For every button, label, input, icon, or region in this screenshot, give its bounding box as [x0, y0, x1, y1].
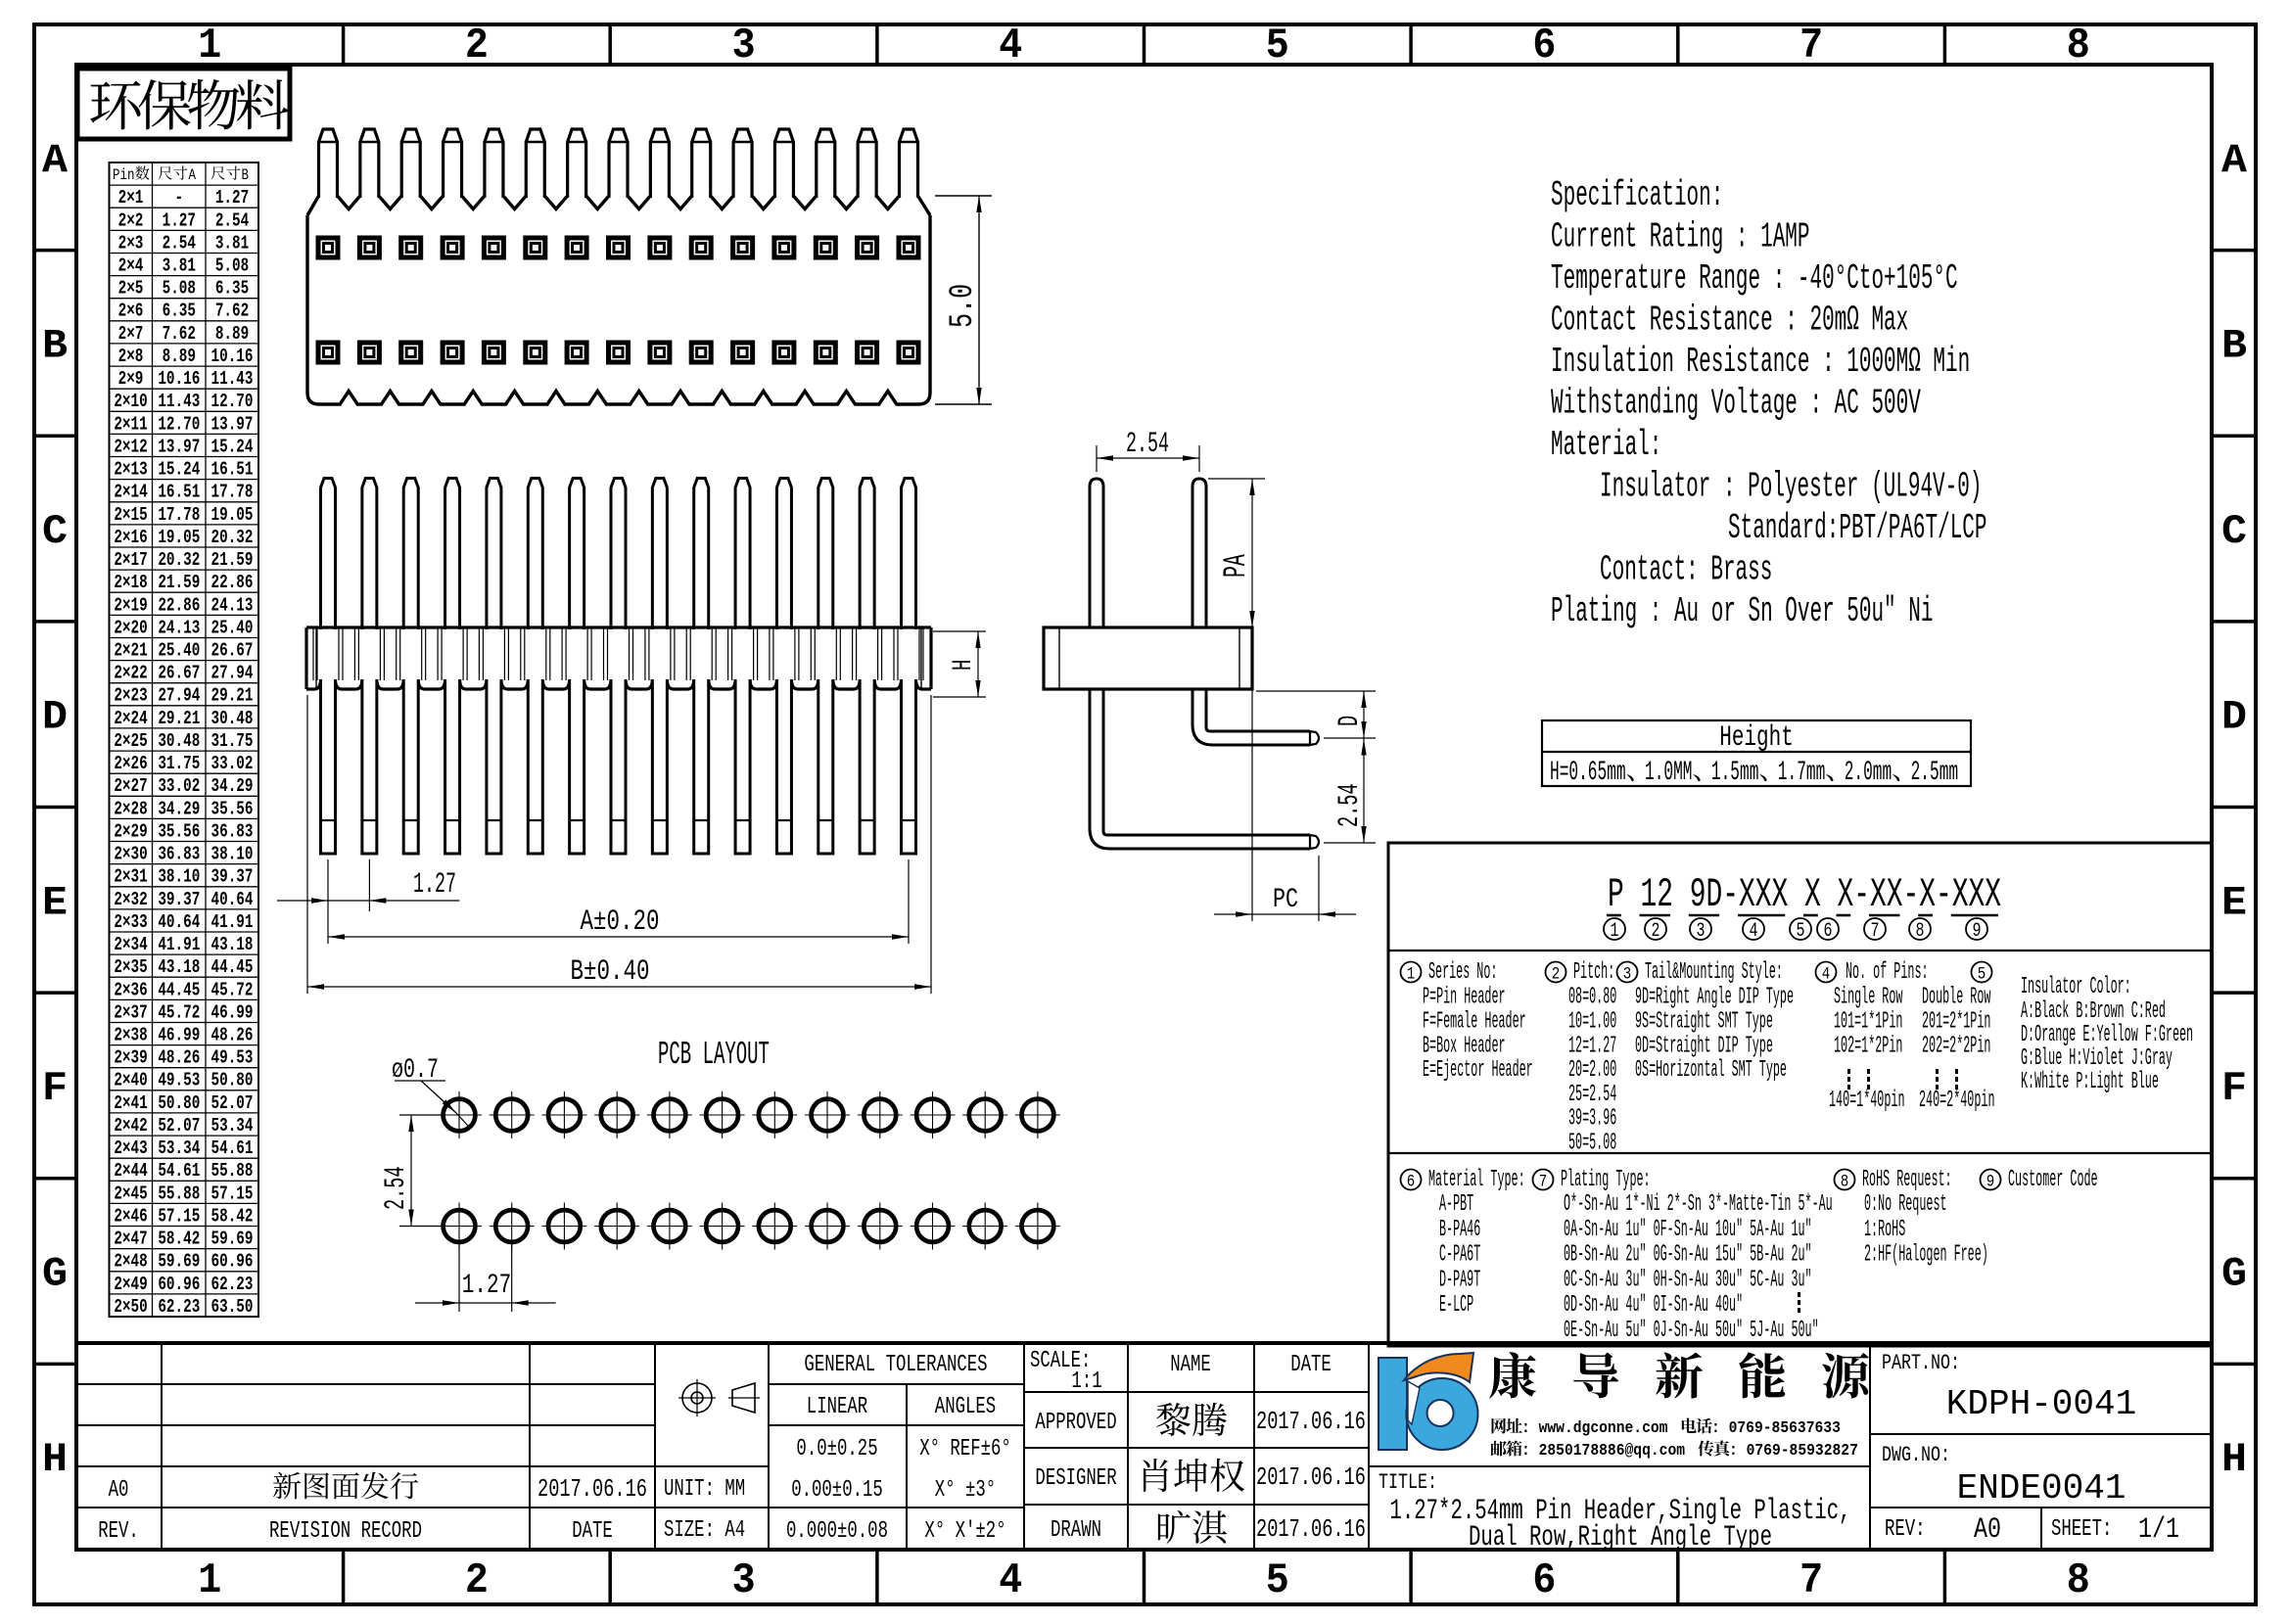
svg-text:A0: A0: [109, 1478, 129, 1504]
svg-text:X° X'±2°: X° X'±2°: [924, 1519, 1005, 1545]
svg-text:2×17: 2×17: [114, 550, 147, 571]
svg-text:1.27: 1.27: [413, 868, 456, 902]
svg-text:54.61: 54.61: [158, 1162, 200, 1183]
svg-text:7: 7: [1799, 1555, 1823, 1604]
svg-text:33.02: 33.02: [211, 754, 254, 774]
svg-text:2×41: 2×41: [114, 1093, 147, 1114]
svg-text:0D-Sn-Au 4u" 0I-Sn-Au 40u": 0D-Sn-Au 4u" 0I-Sn-Au 40u": [1564, 1291, 1743, 1319]
svg-text:Insulator : Polyester (UL94V-0: Insulator : Polyester (UL94V-0): [1600, 466, 1982, 507]
svg-text:F: F: [42, 1064, 68, 1111]
svg-text:4: 4: [1749, 920, 1757, 943]
svg-text:3: 3: [732, 1555, 756, 1604]
svg-text:2×6: 2×6: [118, 302, 144, 322]
svg-text:LINEAR: LINEAR: [807, 1395, 868, 1420]
svg-text:0D=Straight DIP Type: 0D=Straight DIP Type: [1635, 1032, 1773, 1059]
svg-text:2×1: 2×1: [118, 188, 144, 209]
svg-text:11.43: 11.43: [211, 369, 254, 390]
svg-text:38.10: 38.10: [211, 845, 254, 865]
svg-text:30.48: 30.48: [158, 731, 200, 752]
svg-text:Material:: Material:: [1551, 424, 1661, 465]
svg-text:0S=Horizontal SMT Type: 0S=Horizontal SMT Type: [1635, 1056, 1787, 1084]
svg-text:25.40: 25.40: [158, 641, 200, 662]
svg-text:Single Row: Single Row: [1834, 983, 1903, 1010]
svg-text:24.13: 24.13: [158, 619, 200, 639]
svg-text:2: 2: [1552, 964, 1561, 984]
svg-text:2×10: 2×10: [114, 393, 147, 413]
svg-text:34.29: 34.29: [158, 800, 200, 820]
svg-text:59.69: 59.69: [211, 1230, 254, 1250]
svg-text:Insulation Resistance : 1000MΩ: Insulation Resistance : 1000MΩ Min: [1551, 341, 1970, 382]
svg-text:2017.06.16: 2017.06.16: [1256, 1462, 1366, 1492]
svg-text:101=1*1Pin: 101=1*1Pin: [1834, 1007, 1902, 1035]
svg-text:2×42: 2×42: [114, 1116, 147, 1137]
svg-text:53.34: 53.34: [211, 1116, 254, 1137]
svg-text:Double Row: Double Row: [1922, 983, 1991, 1010]
svg-text:24.13: 24.13: [211, 596, 254, 617]
svg-text:Plating Type:: Plating Type:: [1561, 1166, 1651, 1193]
svg-text:: www.dgconne.com: : www.dgconne.com: [1521, 1418, 1667, 1437]
svg-text:REV:: REV:: [1885, 1517, 1926, 1543]
svg-text:REV.: REV.: [98, 1519, 139, 1545]
svg-text:54.61: 54.61: [211, 1138, 254, 1159]
svg-text:57.15: 57.15: [158, 1207, 200, 1228]
svg-text:8: 8: [2067, 21, 2090, 70]
svg-text:140=1*40pin: 140=1*40pin: [1829, 1087, 1904, 1114]
svg-text:2.54: 2.54: [215, 211, 249, 232]
svg-text:40.64: 40.64: [158, 912, 200, 933]
svg-text:2×49: 2×49: [114, 1275, 147, 1295]
svg-text:38.10: 38.10: [158, 867, 200, 888]
svg-text:2×34: 2×34: [114, 935, 147, 955]
svg-text:22.86: 22.86: [211, 573, 254, 593]
svg-text:6: 6: [1823, 920, 1832, 943]
svg-text:2×23: 2×23: [114, 686, 147, 707]
svg-text:58.42: 58.42: [158, 1230, 200, 1250]
svg-text:Plating : Au or Sn Over 50u" N: Plating : Au or Sn Over 50u" Ni: [1551, 590, 1933, 631]
svg-text:22.86: 22.86: [158, 596, 200, 617]
svg-text:10=1.00: 10=1.00: [1568, 1007, 1616, 1035]
svg-text:B: B: [242, 167, 250, 185]
svg-text:2.5mm: 2.5mm: [1911, 757, 1959, 788]
svg-text:Temperature Range : -40°Cto+10: Temperature Range : -40°Cto+105°C: [1551, 257, 1958, 299]
svg-text:GENERAL TOLERANCES: GENERAL TOLERANCES: [804, 1353, 987, 1378]
svg-text:Specification:: Specification:: [1551, 174, 1723, 215]
svg-text:43.18: 43.18: [211, 935, 254, 955]
svg-text:2.0mm: 2.0mm: [1845, 757, 1893, 788]
svg-text:K:White P:Light Blue: K:White P:Light Blue: [2021, 1068, 2159, 1095]
svg-text:19.05: 19.05: [211, 505, 254, 526]
svg-text:39=3.96: 39=3.96: [1568, 1104, 1616, 1132]
svg-text:9: 9: [1972, 920, 1981, 943]
svg-text:2017.06.16: 2017.06.16: [1256, 1407, 1366, 1436]
svg-text:No. of Pins:: No. of Pins:: [1846, 958, 1929, 986]
svg-text:B: B: [2221, 322, 2247, 369]
svg-text:A: A: [189, 167, 197, 185]
svg-text:49.53: 49.53: [211, 1048, 254, 1069]
svg-text:2: 2: [465, 1555, 489, 1604]
svg-text:26.67: 26.67: [158, 664, 200, 684]
svg-text:Customer Code: Customer Code: [2008, 1166, 2098, 1193]
svg-text:2×46: 2×46: [114, 1207, 147, 1228]
svg-text:2×39: 2×39: [114, 1048, 147, 1069]
svg-text:26.67: 26.67: [211, 641, 254, 662]
svg-text:9D=Right Angle DIP Type: 9D=Right Angle DIP Type: [1635, 983, 1794, 1010]
svg-text:A: A: [42, 136, 68, 183]
svg-text:0A-Sn-Au 1u" 0F-Sn-Au 10u" 5A: 0A-Sn-Au 1u" 0F-Sn-Au 10u" 5A-Au 1u": [1564, 1215, 1812, 1242]
svg-text:30.48: 30.48: [211, 709, 254, 729]
svg-text:1.27: 1.27: [215, 188, 249, 209]
svg-text:: 2850178886@qq.com: : 2850178886@qq.com: [1521, 1441, 1685, 1460]
svg-text:A-PBT: A-PBT: [1439, 1190, 1473, 1218]
svg-text:Height: Height: [1719, 720, 1794, 755]
svg-text:5.0: 5.0: [944, 284, 982, 328]
svg-text:A: A: [2221, 136, 2247, 183]
svg-text:5: 5: [1266, 21, 1289, 70]
svg-text:5: 5: [1796, 920, 1804, 943]
svg-text:36.83: 36.83: [211, 822, 254, 843]
svg-text:DESIGNER: DESIGNER: [1035, 1466, 1117, 1492]
svg-text:21.59: 21.59: [211, 550, 254, 571]
svg-text:4: 4: [1822, 964, 1831, 984]
svg-text:2×35: 2×35: [114, 957, 147, 978]
svg-text:31.75: 31.75: [158, 754, 200, 774]
svg-text:9S=Straight SMT Type: 9S=Straight SMT Type: [1635, 1007, 1773, 1035]
svg-text:A±0.20: A±0.20: [581, 905, 660, 938]
svg-text:D: D: [1333, 716, 1367, 726]
svg-text:240=2*40pin: 240=2*40pin: [1919, 1087, 1994, 1114]
svg-text:REVISION RECORD: REVISION RECORD: [269, 1519, 422, 1545]
svg-text:45.72: 45.72: [211, 981, 254, 1001]
svg-text:2×40: 2×40: [114, 1071, 147, 1091]
svg-text:58.42: 58.42: [211, 1207, 254, 1228]
svg-text:16.51: 16.51: [211, 460, 254, 481]
svg-text:2×24: 2×24: [114, 709, 147, 729]
svg-text:2017.06.16: 2017.06.16: [1256, 1514, 1366, 1544]
svg-text:39.37: 39.37: [158, 890, 200, 910]
svg-text:1: 1: [198, 21, 221, 70]
svg-text:7: 7: [1539, 1172, 1548, 1191]
svg-text:H: H: [949, 660, 980, 671]
svg-text:1:1: 1:1: [1071, 1369, 1101, 1395]
svg-text:2×28: 2×28: [114, 800, 147, 820]
svg-text:Material Type:: Material Type:: [1428, 1166, 1525, 1193]
svg-text:3: 3: [1696, 920, 1705, 943]
svg-text:PCB LAYOUT: PCB LAYOUT: [658, 1038, 770, 1074]
svg-text:2×16: 2×16: [114, 528, 147, 548]
svg-text:2.54: 2.54: [1126, 428, 1169, 461]
svg-text:2×50: 2×50: [114, 1297, 147, 1318]
svg-text:48.26: 48.26: [158, 1048, 200, 1069]
svg-text:Tail&Mounting Style:: Tail&Mounting Style:: [1645, 958, 1783, 986]
svg-text:8: 8: [1915, 920, 1924, 943]
svg-text:12.70: 12.70: [158, 415, 200, 436]
svg-text:E: E: [42, 879, 68, 926]
svg-text:Withstanding Voltage : AC 500V: Withstanding Voltage : AC 500V: [1551, 383, 1921, 424]
svg-text:G: G: [42, 1250, 68, 1297]
svg-text:6: 6: [1532, 1555, 1556, 1604]
svg-text:2017.06.16: 2017.06.16: [537, 1474, 647, 1504]
svg-text:1:RoHS: 1:RoHS: [1864, 1215, 1905, 1242]
svg-text:8: 8: [1841, 1172, 1849, 1191]
svg-text:7: 7: [1799, 21, 1823, 70]
svg-text:3: 3: [732, 21, 756, 70]
svg-text:59.69: 59.69: [158, 1252, 200, 1273]
svg-text:27.94: 27.94: [211, 664, 254, 684]
svg-text:62.23: 62.23: [158, 1297, 200, 1318]
svg-text:2×38: 2×38: [114, 1026, 147, 1046]
svg-text:X° REF±6°: X° REF±6°: [919, 1437, 1011, 1462]
svg-text:ANGLES: ANGLES: [935, 1395, 996, 1420]
svg-text:3.81: 3.81: [163, 256, 196, 277]
svg-text:H=0.65mm: H=0.65mm: [1550, 757, 1626, 788]
svg-text:1.7mm: 1.7mm: [1778, 757, 1826, 788]
svg-text:35.56: 35.56: [211, 800, 254, 820]
svg-text:8.89: 8.89: [163, 347, 196, 367]
svg-text:41.91: 41.91: [211, 912, 254, 933]
svg-text:2: 2: [1651, 920, 1659, 943]
svg-text:F: F: [2221, 1064, 2247, 1111]
svg-text:2×32: 2×32: [114, 890, 147, 910]
svg-text:36.83: 36.83: [158, 845, 200, 865]
svg-text:8.89: 8.89: [215, 324, 249, 345]
svg-text:7.62: 7.62: [215, 302, 249, 322]
svg-text:5.08: 5.08: [215, 256, 249, 277]
svg-text:E: E: [2221, 879, 2247, 926]
svg-text:50=5.08: 50=5.08: [1568, 1129, 1616, 1156]
svg-text:12.70: 12.70: [211, 393, 254, 413]
svg-text:Standard:PBT/PA6T/LCP: Standard:PBT/PA6T/LCP: [1728, 507, 1986, 548]
svg-text:APPROVED: APPROVED: [1035, 1411, 1116, 1436]
svg-text:5: 5: [1978, 964, 1986, 984]
svg-text:2×14: 2×14: [114, 483, 147, 503]
svg-text:2×33: 2×33: [114, 912, 147, 933]
svg-text:Insulator Color:: Insulator Color:: [2021, 973, 2131, 1000]
svg-text:16.51: 16.51: [158, 483, 200, 503]
svg-text:7.62: 7.62: [163, 324, 196, 345]
svg-text:2×9: 2×9: [118, 369, 144, 390]
svg-text:25.40: 25.40: [211, 619, 254, 639]
svg-text:6.35: 6.35: [215, 279, 249, 300]
svg-text:Series No:: Series No:: [1428, 958, 1497, 986]
svg-text:35.56: 35.56: [158, 822, 200, 843]
svg-text:27.94: 27.94: [158, 686, 200, 707]
svg-text:F=Female Header: F=Female Header: [1423, 1007, 1526, 1035]
svg-text:P 12 9D-XXX X X-XX-X-XXX: P 12 9D-XXX X X-XX-X-XXX: [1608, 871, 2001, 918]
svg-text:DATE: DATE: [1290, 1353, 1332, 1378]
svg-text:2×45: 2×45: [114, 1184, 147, 1205]
svg-text:45.72: 45.72: [158, 1003, 200, 1024]
svg-text:202=2*2Pin: 202=2*2Pin: [1922, 1032, 1990, 1059]
svg-text:2×13: 2×13: [114, 460, 147, 481]
svg-text:1.0MM: 1.0MM: [1645, 757, 1693, 788]
svg-text:PC: PC: [1273, 884, 1298, 915]
svg-text:0.000±0.08: 0.000±0.08: [786, 1519, 888, 1545]
svg-text:33.02: 33.02: [158, 777, 200, 798]
svg-text:6: 6: [1532, 21, 1556, 70]
svg-text:: 0769-85637633: : 0769-85637633: [1711, 1418, 1841, 1437]
svg-text:17.78: 17.78: [211, 483, 254, 503]
svg-text:2×43: 2×43: [114, 1138, 147, 1159]
svg-text:3.81: 3.81: [215, 234, 249, 255]
svg-text:2×7: 2×7: [118, 324, 144, 345]
svg-text:4: 4: [999, 1555, 1022, 1604]
svg-text:5: 5: [1266, 1555, 1289, 1604]
svg-text:DWG.NO:: DWG.NO:: [1882, 1443, 1950, 1467]
svg-text:20.32: 20.32: [211, 528, 254, 548]
svg-text:1: 1: [1407, 964, 1416, 984]
svg-text:C: C: [42, 508, 68, 555]
svg-text:1.27: 1.27: [163, 211, 196, 232]
svg-text:2×20: 2×20: [114, 619, 147, 639]
svg-text:0.00±0.15: 0.00±0.15: [791, 1478, 883, 1504]
svg-text:2×18: 2×18: [114, 573, 147, 593]
svg-text:Pin: Pin: [113, 167, 134, 185]
svg-text:0B-Sn-Au 2u" 0G-Sn-Au 15u" 5B: 0B-Sn-Au 2u" 0G-Sn-Au 15u" 5B-Au 2u": [1564, 1240, 1812, 1268]
svg-text:D: D: [42, 693, 68, 740]
svg-text:2×2: 2×2: [118, 211, 144, 232]
svg-text:PART.NO:: PART.NO:: [1882, 1351, 1960, 1375]
svg-text:20.32: 20.32: [158, 550, 200, 571]
svg-text:8: 8: [2067, 1555, 2090, 1604]
svg-text:C: C: [2221, 508, 2247, 555]
svg-text:RoHS Request:: RoHS Request:: [1862, 1166, 1952, 1193]
svg-text:2×15: 2×15: [114, 505, 147, 526]
svg-text:2×26: 2×26: [114, 754, 147, 774]
svg-text:60.96: 60.96: [211, 1252, 254, 1273]
svg-text:15.24: 15.24: [158, 460, 200, 481]
svg-text:6: 6: [1407, 1172, 1416, 1191]
svg-text:52.07: 52.07: [158, 1116, 200, 1137]
svg-text:2×12: 2×12: [114, 438, 147, 458]
svg-text:A0: A0: [1974, 1514, 2001, 1547]
svg-text:2.54: 2.54: [380, 1166, 413, 1210]
svg-text:2×4: 2×4: [118, 256, 144, 277]
svg-text:34.29: 34.29: [211, 777, 254, 798]
svg-text:G: G: [2221, 1250, 2247, 1297]
svg-text:9: 9: [1986, 1172, 1995, 1191]
svg-text:2×37: 2×37: [114, 1003, 147, 1024]
svg-text:46.99: 46.99: [158, 1026, 200, 1046]
svg-text:15.24: 15.24: [211, 438, 254, 458]
svg-text:0C-Sn-Au 3u" 0H-Sn-Au 30u" 5C: 0C-Sn-Au 3u" 0H-Sn-Au 30u" 5C-Au 3u": [1564, 1266, 1812, 1293]
svg-text:E=Ejector Header: E=Ejector Header: [1423, 1056, 1533, 1084]
svg-text:-: -: [175, 188, 184, 209]
svg-text:H: H: [2221, 1436, 2247, 1483]
svg-text:2×31: 2×31: [114, 867, 147, 888]
svg-text:Contact: Brass: Contact: Brass: [1600, 549, 1772, 590]
svg-text:31.75: 31.75: [211, 731, 254, 752]
svg-text:B=Box Header: B=Box Header: [1423, 1032, 1506, 1059]
svg-text:5.08: 5.08: [163, 279, 196, 300]
svg-text:44.45: 44.45: [158, 981, 200, 1001]
svg-text:1: 1: [198, 1555, 221, 1604]
svg-text:7: 7: [1870, 920, 1879, 943]
svg-text:4: 4: [999, 21, 1022, 70]
svg-text:2×3: 2×3: [118, 234, 144, 255]
svg-text:13.97: 13.97: [158, 438, 200, 458]
svg-text:C-PA6T: C-PA6T: [1439, 1240, 1480, 1268]
svg-text:DATE: DATE: [572, 1519, 613, 1545]
svg-text:: 0769-85932827: : 0769-85932827: [1729, 1441, 1858, 1460]
svg-text:43.18: 43.18: [158, 957, 200, 978]
svg-text:08=0.80: 08=0.80: [1568, 983, 1616, 1010]
svg-text:2×44: 2×44: [114, 1162, 147, 1183]
svg-text:2×47: 2×47: [114, 1230, 147, 1250]
svg-text:102=1*2Pin: 102=1*2Pin: [1834, 1032, 1902, 1059]
svg-text:2: 2: [465, 21, 489, 70]
svg-text:1.27: 1.27: [462, 1270, 511, 1301]
svg-text:19.05: 19.05: [158, 528, 200, 548]
svg-text:O*-Sn-Au 1*-Ni 2*-Sn 3*-Matte-: O*-Sn-Au 1*-Ni 2*-Sn 3*-Matte-Tin 5*-Au: [1564, 1190, 1833, 1218]
svg-text:39.37: 39.37: [211, 867, 254, 888]
svg-text:57.15: 57.15: [211, 1184, 254, 1205]
svg-text:6.35: 6.35: [163, 302, 196, 322]
svg-text:X° ±3°: X° ±3°: [935, 1478, 996, 1504]
svg-text:2×27: 2×27: [114, 777, 147, 798]
svg-text:2×19: 2×19: [114, 596, 147, 617]
svg-text:Pitch:: Pitch:: [1573, 958, 1614, 986]
svg-text:B-PA46: B-PA46: [1439, 1215, 1480, 1242]
svg-text:0:No Request: 0:No Request: [1864, 1190, 1947, 1218]
svg-text:E-LCP: E-LCP: [1439, 1291, 1473, 1319]
svg-text:44.45: 44.45: [211, 957, 254, 978]
svg-text:40.64: 40.64: [211, 890, 254, 910]
svg-text:2.54: 2.54: [163, 234, 196, 255]
svg-text:2×48: 2×48: [114, 1252, 147, 1273]
svg-text:B: B: [42, 322, 68, 369]
svg-text:2×8: 2×8: [118, 347, 144, 367]
svg-text:DRAWN: DRAWN: [1051, 1518, 1101, 1544]
svg-text:H: H: [42, 1436, 68, 1483]
svg-text:0E-Sn-Au 5u" 0J-Sn-Au 50u" 5J: 0E-Sn-Au 5u" 0J-Sn-Au 50u" 5J-Au 50u": [1564, 1317, 1819, 1344]
svg-text:2×36: 2×36: [114, 981, 147, 1001]
svg-text:12=1.27: 12=1.27: [1568, 1032, 1616, 1059]
svg-text:55.88: 55.88: [211, 1162, 254, 1183]
svg-text:20=2.00: 20=2.00: [1568, 1056, 1616, 1084]
svg-text:21.59: 21.59: [158, 573, 200, 593]
svg-text:29.21: 29.21: [211, 686, 254, 707]
svg-text:1/1: 1/1: [2138, 1514, 2179, 1547]
svg-text:KDPH-0041: KDPH-0041: [1946, 1384, 2136, 1424]
svg-text:D-PA9T: D-PA9T: [1439, 1266, 1480, 1293]
svg-text:PA: PA: [1219, 554, 1254, 578]
svg-text:TITLE:: TITLE:: [1379, 1470, 1437, 1495]
svg-text:2×25: 2×25: [114, 731, 147, 752]
svg-text:SHEET:: SHEET:: [2051, 1517, 2112, 1543]
svg-text:2:HF(Halogen Free): 2:HF(Halogen Free): [1864, 1240, 1988, 1268]
svg-text:41.91: 41.91: [158, 935, 200, 955]
svg-text:2.54: 2.54: [1333, 783, 1367, 827]
svg-text:46.99: 46.99: [211, 1003, 254, 1024]
svg-text:29.21: 29.21: [158, 709, 200, 729]
svg-text:53.34: 53.34: [158, 1138, 200, 1159]
svg-text:62.23: 62.23: [211, 1275, 254, 1295]
svg-text:2×22: 2×22: [114, 664, 147, 684]
svg-text:17.78: 17.78: [158, 505, 200, 526]
svg-text:48.26: 48.26: [211, 1026, 254, 1046]
svg-text:ENDE0041: ENDE0041: [1957, 1468, 2126, 1508]
svg-text:0.0±0.25: 0.0±0.25: [796, 1437, 877, 1462]
svg-text:Contact Resistance : 20mΩ Max: Contact Resistance : 20mΩ Max: [1551, 300, 1908, 341]
svg-text:1.5mm: 1.5mm: [1711, 757, 1759, 788]
svg-text:11.43: 11.43: [158, 393, 200, 413]
svg-text:10.16: 10.16: [211, 347, 254, 367]
svg-text:Dual Row,Right Angle Type: Dual Row,Right Angle Type: [1469, 1521, 1772, 1554]
svg-text:63.50: 63.50: [211, 1297, 254, 1318]
svg-text:D: D: [2221, 693, 2247, 740]
svg-text:10.16: 10.16: [158, 369, 200, 390]
svg-text:SIZE: A4: SIZE: A4: [664, 1518, 745, 1544]
